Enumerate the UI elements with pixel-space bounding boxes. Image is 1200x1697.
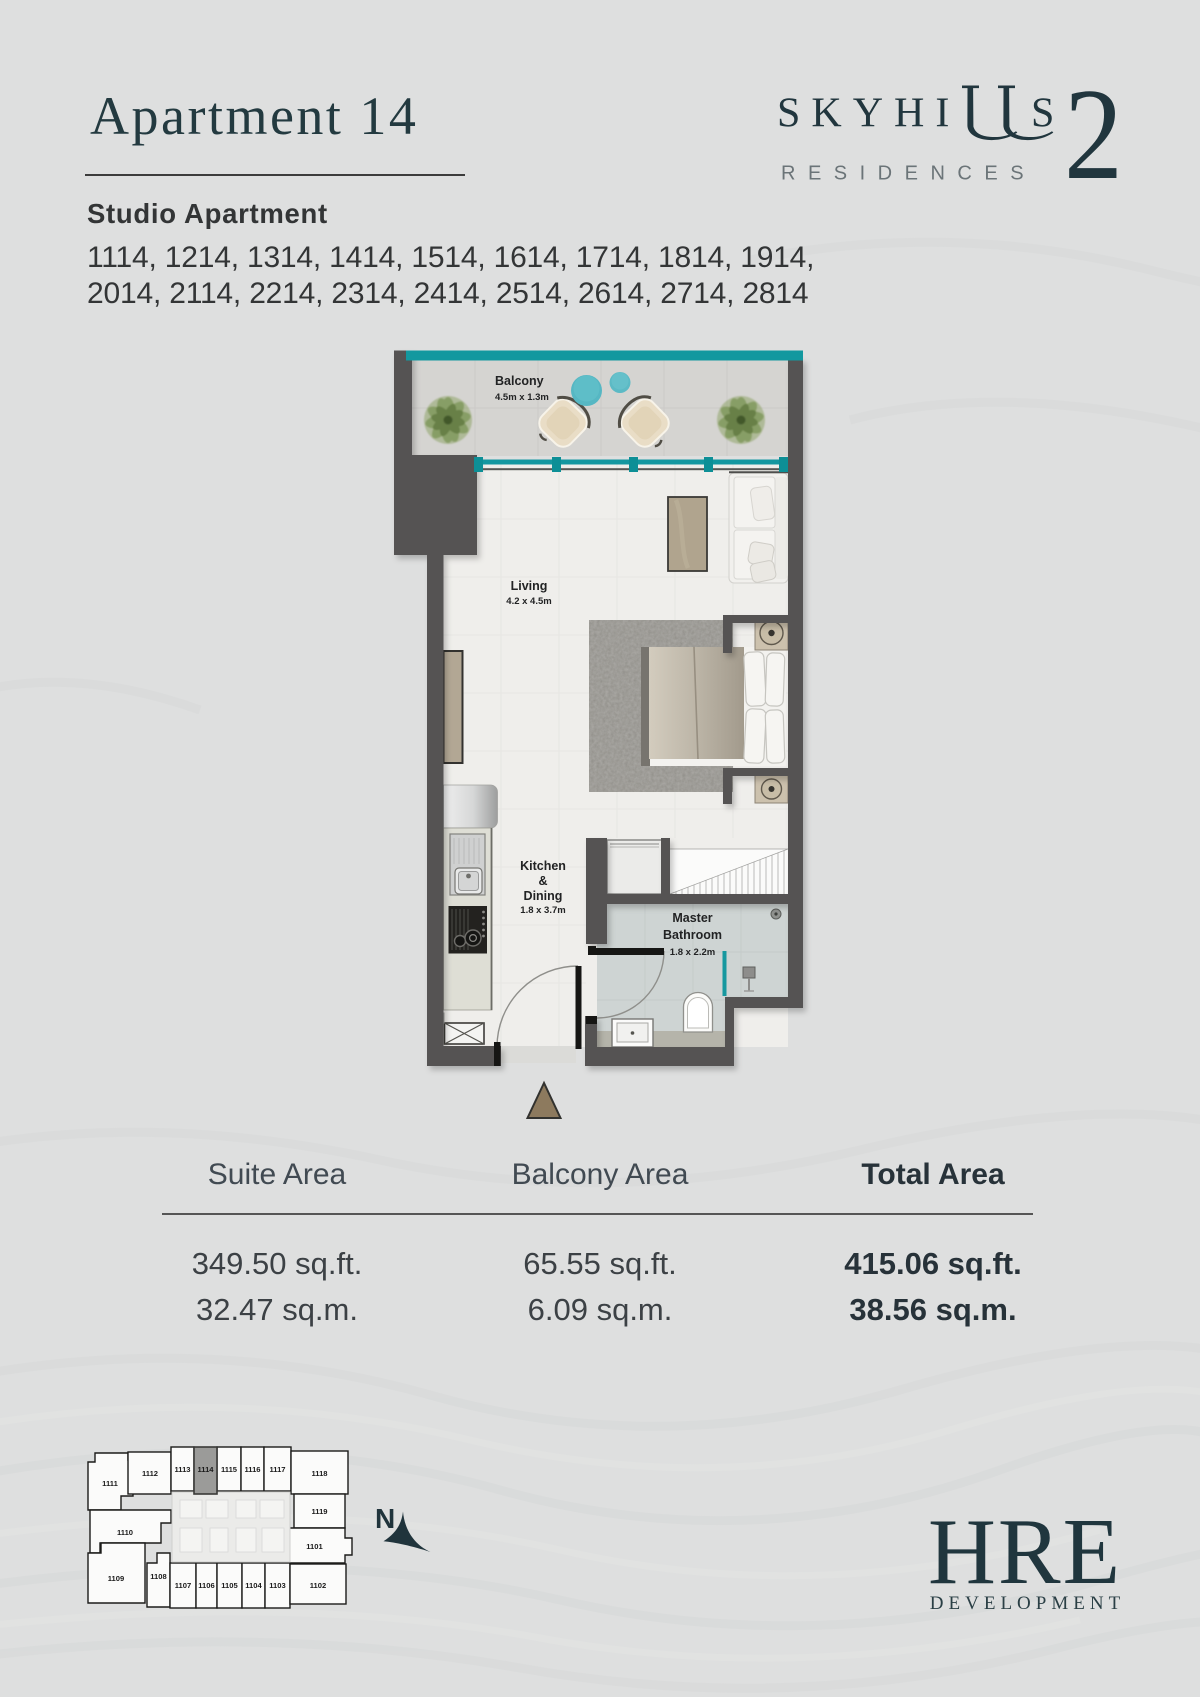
svg-text:1108: 1108: [150, 1572, 166, 1581]
svg-text:2: 2: [1064, 70, 1123, 190]
svg-text:RESIDENCES: RESIDENCES: [781, 163, 1036, 185]
svg-text:4.5m x 1.3m: 4.5m x 1.3m: [495, 392, 549, 403]
svg-text:1105: 1105: [221, 1581, 238, 1590]
svg-text:1109: 1109: [108, 1574, 124, 1583]
svg-text:1103: 1103: [269, 1581, 285, 1590]
svg-text:1117: 1117: [269, 1465, 285, 1474]
svg-text:1101: 1101: [306, 1542, 323, 1551]
svg-text:1111: 1111: [102, 1479, 118, 1488]
svg-text:1.8 x 2.2m: 1.8 x 2.2m: [670, 947, 715, 958]
svg-text:1113: 1113: [174, 1465, 190, 1474]
svg-text:1114: 1114: [197, 1465, 214, 1474]
svg-text:Living: Living: [511, 579, 548, 593]
svg-text:SKYHI: SKYHI: [777, 91, 960, 137]
svg-text:Dining: Dining: [524, 889, 563, 903]
svg-text:Kitchen: Kitchen: [520, 859, 566, 873]
svg-text:1118: 1118: [311, 1469, 327, 1478]
svg-text:1106: 1106: [198, 1581, 214, 1590]
svg-text:1116: 1116: [244, 1465, 260, 1474]
svg-text:1102: 1102: [310, 1581, 326, 1590]
svg-text:4.2 x 4.5m: 4.2 x 4.5m: [506, 596, 551, 607]
svg-text:1110: 1110: [117, 1528, 133, 1537]
svg-text:1.8 x 3.7m: 1.8 x 3.7m: [520, 905, 565, 916]
svg-text:1104: 1104: [245, 1581, 262, 1590]
svg-text:&: &: [538, 874, 547, 888]
svg-text:Balcony: Balcony: [495, 374, 544, 388]
svg-text:1107: 1107: [175, 1581, 191, 1590]
svg-text:Bathroom: Bathroom: [663, 928, 722, 942]
svg-text:1112: 1112: [142, 1469, 158, 1478]
svg-text:1119: 1119: [311, 1507, 327, 1516]
svg-text:N: N: [375, 1503, 395, 1534]
svg-text:1115: 1115: [221, 1465, 238, 1474]
svg-text:S: S: [1031, 91, 1054, 137]
svg-text:Master: Master: [672, 911, 712, 925]
